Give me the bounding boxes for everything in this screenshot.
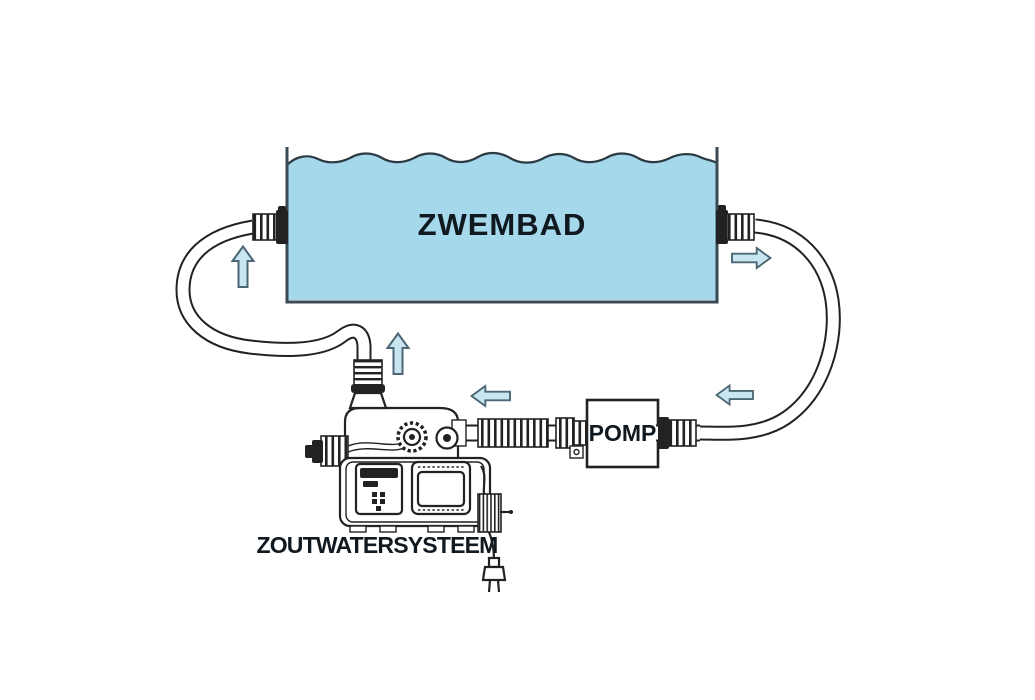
pump-label: POMP — [587, 400, 658, 467]
power-plug-icon — [483, 558, 505, 592]
pump-to-system-hose — [456, 419, 560, 447]
flow-up-arrow-icon — [388, 334, 409, 375]
power-cord — [478, 466, 513, 592]
flow-right-arrow-icon — [732, 248, 770, 268]
saltwater-system-label: ZOUTWATERSYSTEEM — [247, 531, 507, 559]
flow-up-arrow-icon — [233, 247, 254, 288]
pump-outlet-fitting — [656, 417, 700, 449]
hose-union-fitting — [556, 418, 588, 458]
flow-left-arrow-icon — [472, 386, 510, 406]
diagram-canvas: ZWEMBAD POMP ZOUTWATERSYSTEEM — [0, 0, 1035, 700]
pool-left-inlet-fitting — [253, 206, 288, 244]
device-top-fitting — [350, 360, 386, 408]
device-vent-panel — [412, 462, 470, 514]
pool-system-diagram — [0, 0, 1035, 700]
device-valve-knob-right — [437, 428, 458, 449]
flow-left-arrow-icon — [717, 386, 753, 405]
power-cord-coil — [478, 494, 501, 532]
pool-right-outlet-fitting — [716, 205, 754, 244]
device-valve-knob-left — [398, 423, 426, 451]
pool-label: ZWEMBAD — [287, 150, 717, 300]
device-control-panel — [356, 464, 402, 514]
saltwater-system-device — [305, 360, 490, 532]
